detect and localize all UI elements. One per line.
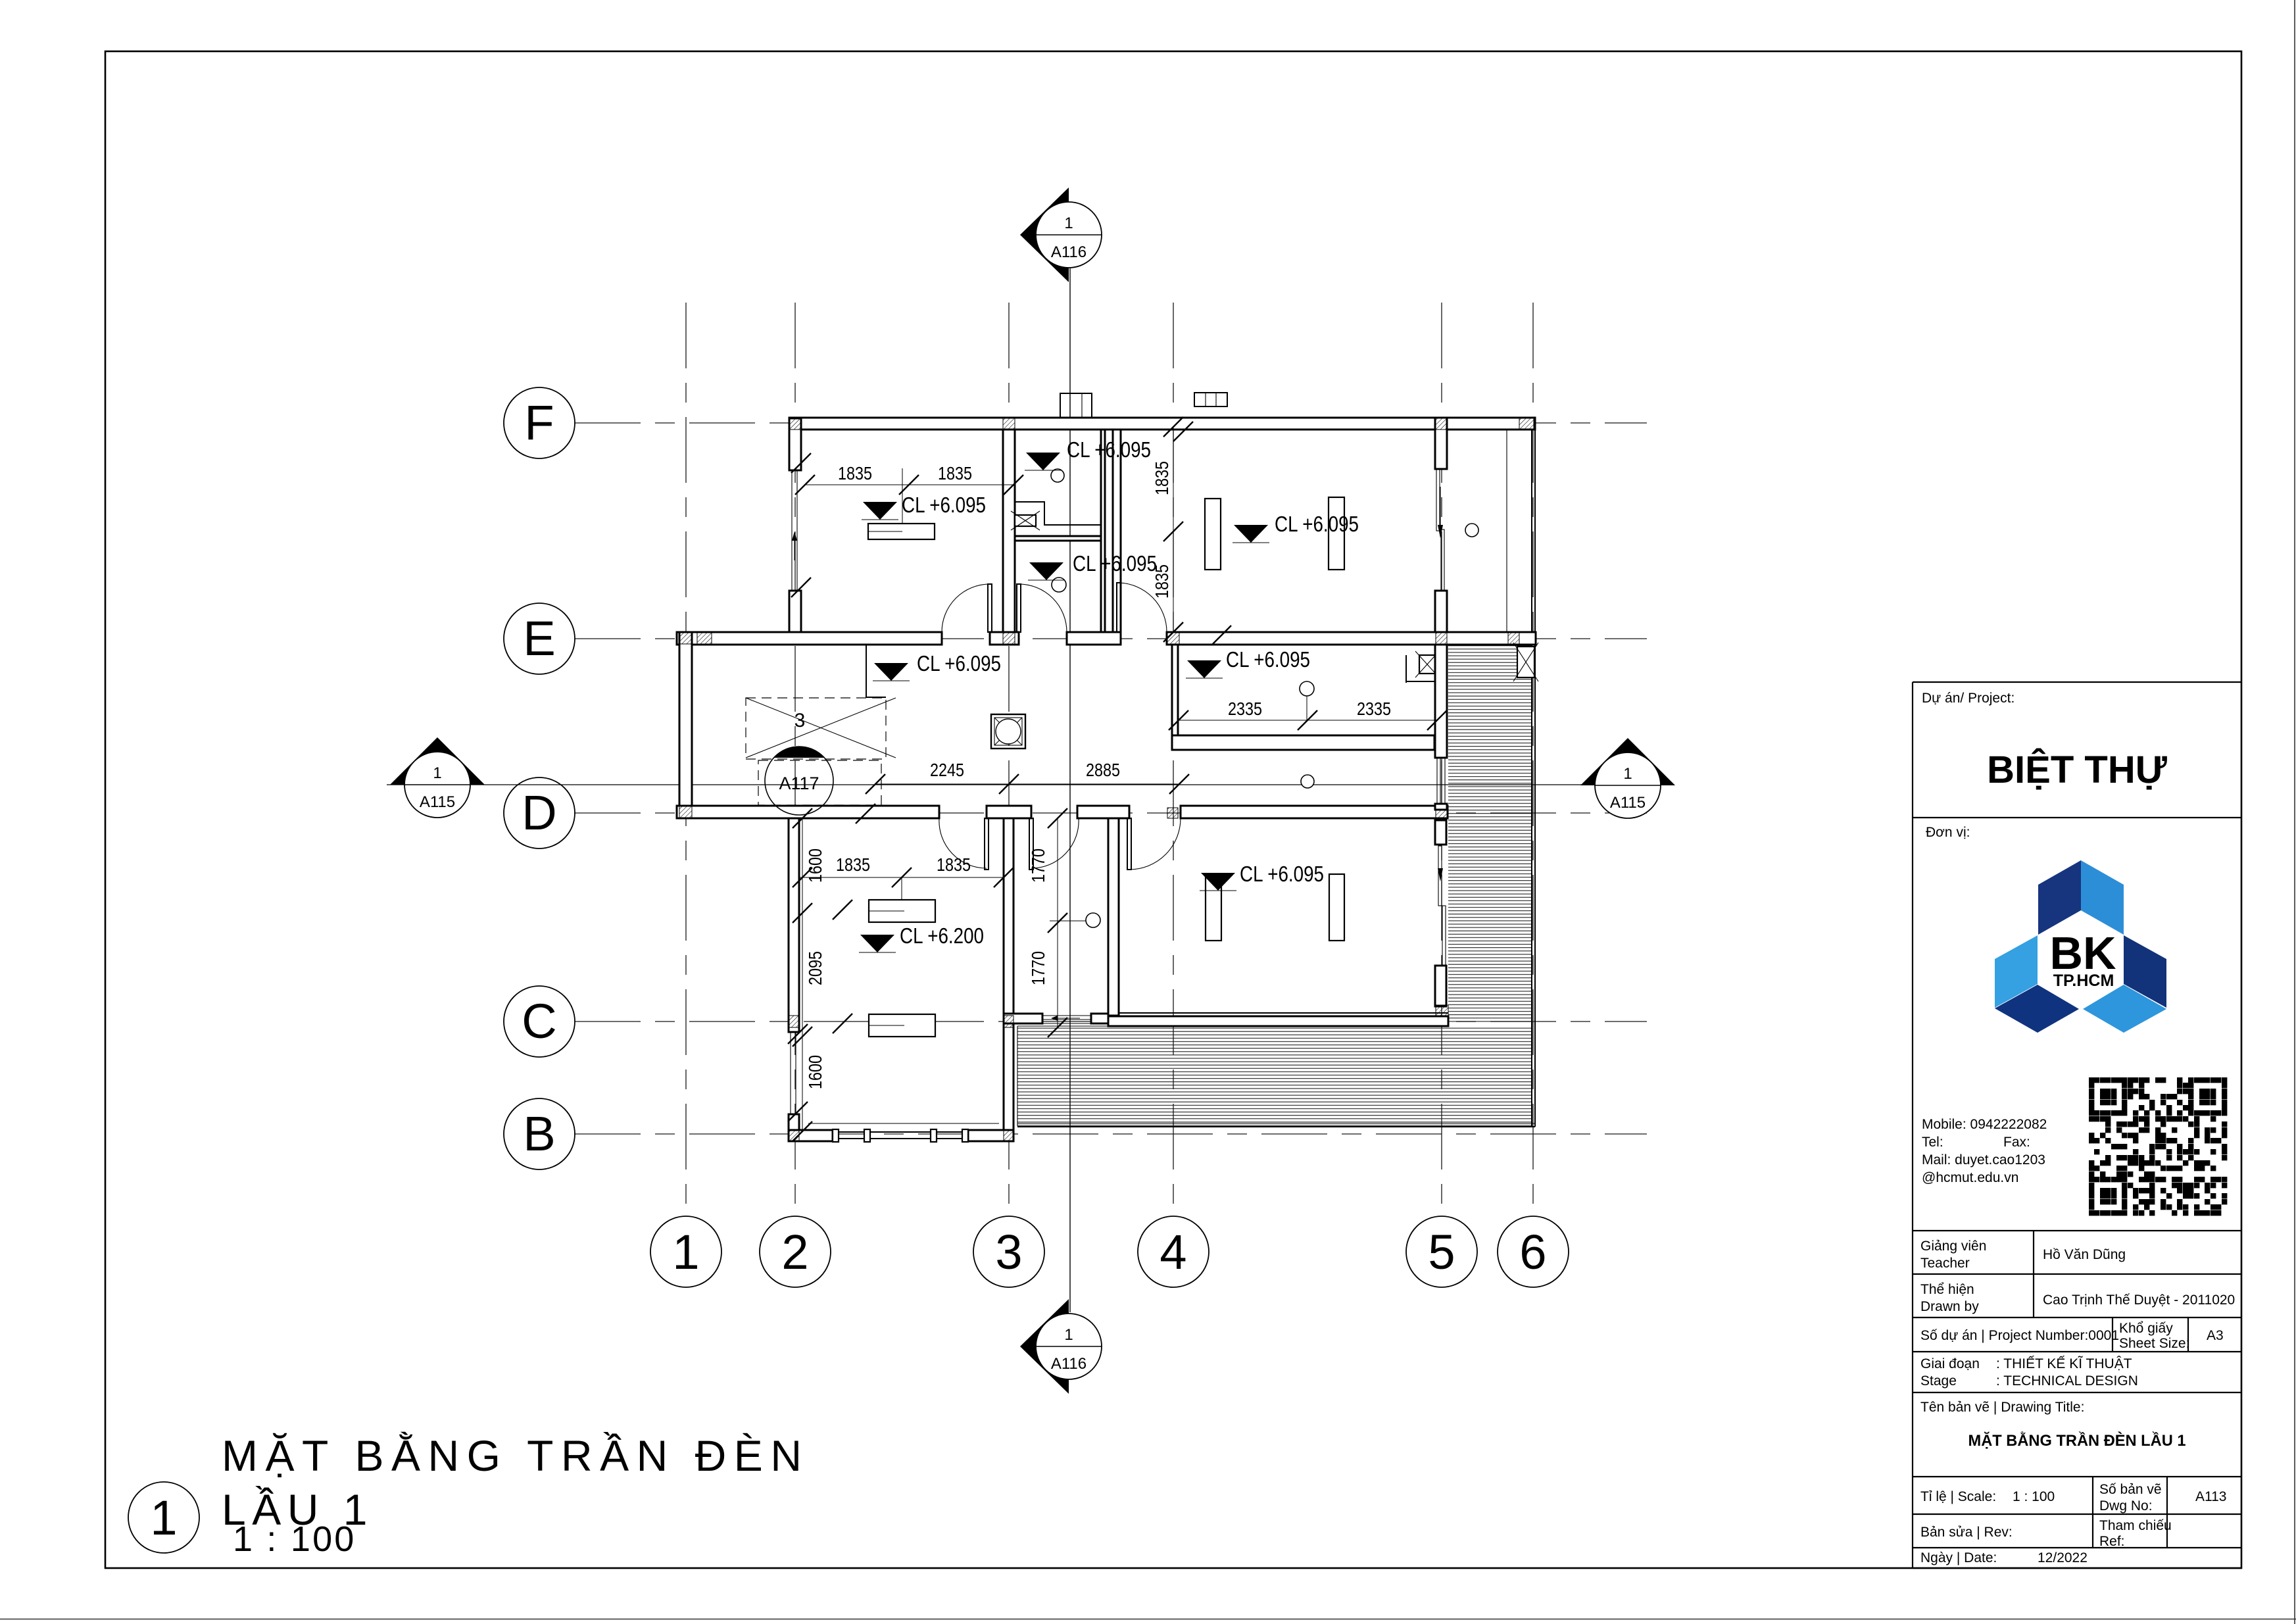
- svg-text:A115: A115: [420, 793, 455, 811]
- svg-text:1: 1: [433, 764, 441, 782]
- svg-text:Cao Trịnh Thế Duyệt - 2011020: Cao Trịnh Thế Duyệt - 2011020: [2043, 1292, 2235, 1308]
- svg-text:2: 2: [781, 1225, 808, 1279]
- svg-text:Ngày | Date:: Ngày | Date:: [1920, 1550, 1997, 1565]
- svg-text:2335: 2335: [1357, 699, 1391, 719]
- svg-text:Tham chiếu: Tham chiếu: [2099, 1518, 2172, 1533]
- svg-text:A116: A116: [1051, 243, 1087, 261]
- svg-text:Mobile: 0942222082: Mobile: 0942222082: [1922, 1117, 2047, 1132]
- svg-text:2245: 2245: [930, 760, 964, 780]
- svg-text:1835: 1835: [1152, 564, 1172, 599]
- svg-text:Tên bản vẽ | Drawing Title:: Tên bản vẽ | Drawing Title:: [1920, 1400, 2084, 1415]
- svg-text:Fax:: Fax:: [2003, 1135, 2030, 1150]
- svg-text:Thể hiện: Thể hiện: [1920, 1282, 1974, 1297]
- svg-text:1835: 1835: [838, 463, 872, 483]
- svg-text:Dự án/ Project:: Dự án/ Project:: [1922, 691, 2015, 706]
- svg-text:CL +6.095: CL +6.095: [1240, 862, 1324, 886]
- svg-text:CL +6.095: CL +6.095: [1067, 437, 1151, 462]
- svg-text:CL +6.095: CL +6.095: [917, 651, 1001, 676]
- svg-text:Dwg No:: Dwg No:: [2099, 1498, 2153, 1513]
- svg-text:MẶT BẰNG TRẦN ĐÈN LẦU 1: MẶT BẰNG TRẦN ĐÈN LẦU 1: [1968, 1431, 2186, 1450]
- svg-text:Số bản vẽ: Số bản vẽ: [2099, 1482, 2162, 1497]
- svg-text:Bản sửa | Rev:: Bản sửa | Rev:: [1920, 1525, 2013, 1540]
- svg-text:1600: 1600: [805, 849, 825, 883]
- svg-text:CL +6.095: CL +6.095: [1073, 551, 1157, 576]
- svg-text:1: 1: [672, 1225, 699, 1279]
- svg-text:Sheet Size:: Sheet Size:: [2119, 1336, 2189, 1351]
- svg-text:Mail: duyet.cao1203: Mail: duyet.cao1203: [1922, 1152, 2045, 1168]
- svg-text:Ref:: Ref:: [2099, 1534, 2125, 1549]
- svg-text:B: B: [523, 1106, 555, 1161]
- svg-text:12/2022: 12/2022: [2038, 1550, 2088, 1565]
- svg-text:@hcmut.edu.vn: @hcmut.edu.vn: [1922, 1170, 2018, 1185]
- svg-text:Tỉ lệ | Scale:: Tỉ lệ | Scale:: [1920, 1489, 1996, 1504]
- svg-text:1835: 1835: [1152, 461, 1172, 495]
- svg-text:3: 3: [794, 710, 806, 731]
- svg-text:F: F: [524, 395, 554, 450]
- svg-text:A116: A116: [1051, 1355, 1087, 1373]
- svg-text:1770: 1770: [1028, 951, 1048, 985]
- svg-text:2885: 2885: [1086, 760, 1120, 780]
- svg-text:Đơn vị:: Đơn vị:: [1926, 825, 1970, 840]
- svg-text:6: 6: [1519, 1225, 1546, 1279]
- svg-text:CL +6.200: CL +6.200: [900, 923, 984, 948]
- svg-text:E: E: [523, 611, 555, 666]
- svg-text:4: 4: [1160, 1225, 1186, 1279]
- svg-text:1835: 1835: [938, 463, 972, 483]
- svg-text:D: D: [522, 785, 556, 840]
- svg-text:C: C: [522, 994, 556, 1048]
- svg-text:A117: A117: [779, 774, 819, 793]
- svg-text:A113: A113: [2195, 1489, 2227, 1504]
- svg-text:5: 5: [1428, 1225, 1455, 1279]
- svg-text:CL +6.095: CL +6.095: [1275, 512, 1359, 536]
- svg-text:: THIẾT KẾ KĨ THUẬT: : THIẾT KẾ KĨ THUẬT: [1996, 1356, 2132, 1371]
- svg-text:CL +6.095: CL +6.095: [902, 493, 986, 517]
- svg-text:Số dự án | Project Number:0001: Số dự án | Project Number:0001: [1920, 1328, 2119, 1343]
- svg-text:Teacher: Teacher: [1920, 1256, 1970, 1271]
- svg-text:2335: 2335: [1228, 699, 1262, 719]
- svg-text:1: 1: [1623, 765, 1632, 783]
- svg-text:Tel:: Tel:: [1922, 1135, 1943, 1150]
- svg-text:Giai đoạn: Giai đoạn: [1920, 1356, 1980, 1371]
- svg-text:1770: 1770: [1028, 849, 1048, 883]
- svg-text:A115: A115: [1610, 794, 1646, 812]
- svg-text:MẶT BẰNG TRẦN ĐÈN: MẶT BẰNG TRẦN ĐÈN: [222, 1431, 810, 1480]
- svg-text:CL +6.095: CL +6.095: [1226, 647, 1310, 672]
- svg-text:TP.HCM: TP.HCM: [2053, 972, 2114, 990]
- svg-text:1600: 1600: [805, 1055, 825, 1089]
- svg-text:1835: 1835: [937, 854, 971, 875]
- svg-text:A3: A3: [2207, 1328, 2224, 1343]
- svg-text:Hồ Văn Dũng: Hồ Văn Dũng: [2043, 1247, 2126, 1262]
- svg-text:Stage: Stage: [1920, 1373, 1957, 1389]
- svg-text:1: 1: [1064, 1326, 1073, 1344]
- svg-text:Giảng viên: Giảng viên: [1920, 1239, 1986, 1254]
- svg-text:1: 1: [150, 1490, 177, 1545]
- svg-text:Drawn by: Drawn by: [1920, 1299, 1979, 1314]
- svg-text:1: 1: [1064, 214, 1073, 232]
- svg-text:2095: 2095: [805, 951, 825, 985]
- svg-text:: TECHNICAL DESIGN: : TECHNICAL DESIGN: [1996, 1373, 2138, 1389]
- svg-text:1835: 1835: [836, 854, 870, 875]
- svg-text:1 : 100: 1 : 100: [233, 1519, 356, 1559]
- svg-text:3: 3: [995, 1225, 1022, 1279]
- svg-text:1 : 100: 1 : 100: [2013, 1489, 2055, 1504]
- svg-text:Khổ giấy: Khổ giấy: [2119, 1321, 2173, 1336]
- svg-text:BIỆT THỰ: BIỆT THỰ: [1987, 749, 2168, 791]
